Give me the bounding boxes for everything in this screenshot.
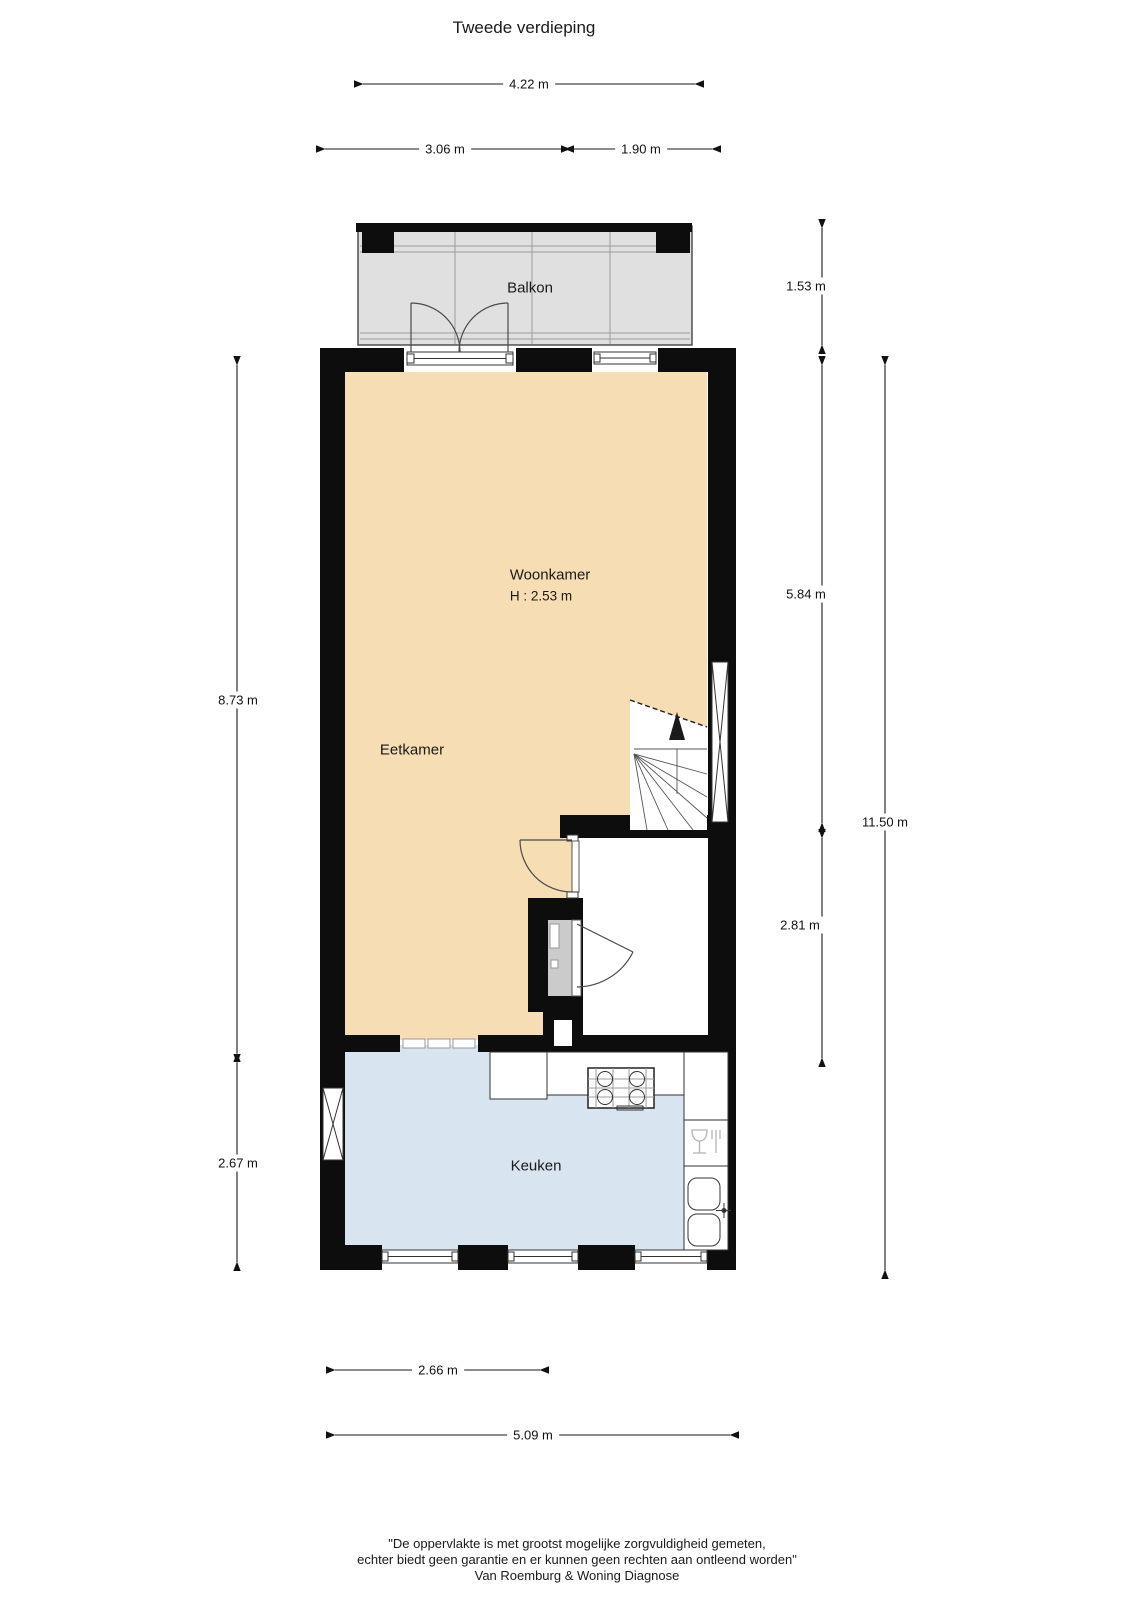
closet-boiler (550, 924, 559, 948)
kitchen-passage-threshold (403, 1039, 475, 1048)
kitchen-side-window (323, 1088, 343, 1160)
stairwell-window (712, 662, 728, 822)
stove-icon (588, 1068, 654, 1110)
floorplan-page: Tweede verdieping Balkon Woonkamer H : 2… (0, 0, 1132, 1600)
balcony-corner-post-left (362, 223, 394, 253)
floorplan-drawing (0, 0, 1132, 1600)
room-label-balcony: Balkon (507, 280, 553, 297)
living-ceiling-height: H : 2.53 m (510, 589, 572, 604)
room-label-dining: Eetkamer (380, 742, 444, 759)
dim-total-width-bottom: 5.09 m (507, 1427, 559, 1444)
disclaimer-line-2: echter biedt geen garantie en er kunnen … (357, 1552, 797, 1568)
closet-fixture (551, 960, 558, 968)
kitchen-window-2 (508, 1250, 578, 1263)
living-window (592, 348, 658, 372)
room-label-kitchen: Keuken (511, 1158, 562, 1175)
kitchen-window-3 (635, 1250, 707, 1263)
disclaimer-line-1: "De oppervlakte is met grootst mogelijke… (357, 1536, 797, 1552)
dim-kitchen-depth-left: 2.67 m (212, 1155, 264, 1172)
balcony-corner-post-right (656, 223, 690, 253)
disclaimer: "De oppervlakte is met grootst mogelijke… (357, 1536, 797, 1584)
page-title: Tweede verdieping (453, 18, 596, 38)
dim-balcony-depth: 1.53 m (780, 278, 832, 295)
dim-balcony-width-right: 1.90 m (615, 141, 667, 158)
disclaimer-line-3: Van Roemburg & Woning Diagnose (357, 1568, 797, 1584)
dim-balcony-width-left: 3.06 m (419, 141, 471, 158)
dim-balcony-width-total: 4.22 m (503, 76, 555, 93)
kitchen-window-1 (382, 1250, 458, 1263)
dim-total-depth-right: 11.50 m (856, 814, 914, 831)
dim-living-depth-right: 5.84 m (780, 586, 832, 603)
dim-kitchen-width-bottom: 2.66 m (412, 1362, 464, 1379)
dim-landing-depth-right: 2.81 m (774, 917, 826, 934)
room-label-living: Woonkamer (510, 567, 591, 584)
dim-living-depth-left: 8.73 m (212, 692, 264, 709)
balcony-rail-top (356, 223, 692, 232)
shaft-opening (554, 1020, 572, 1046)
